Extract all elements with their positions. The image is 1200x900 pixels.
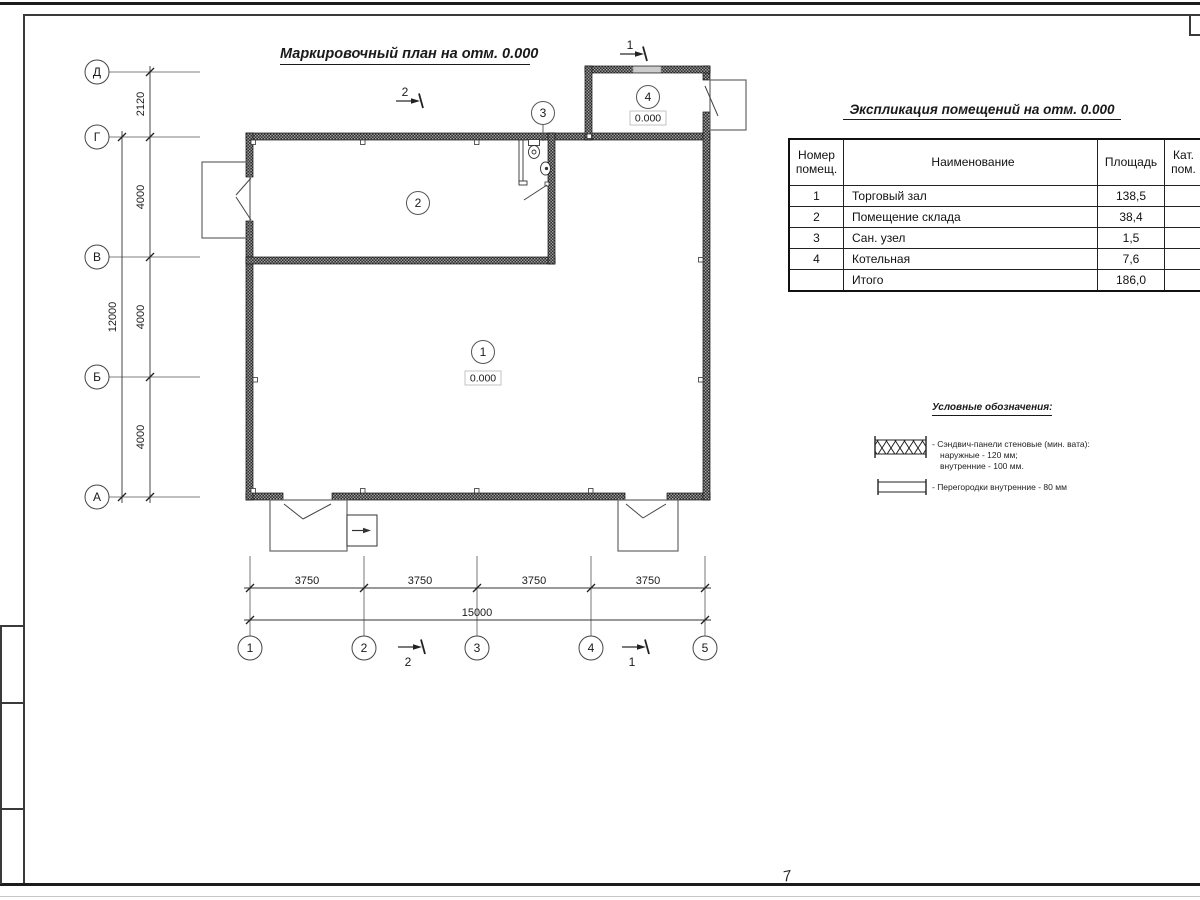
axis-label-b: Б bbox=[93, 370, 101, 384]
table-row: 4 Котельная 7,6 bbox=[789, 249, 1200, 270]
cell-number: 3 bbox=[789, 228, 844, 249]
axis-label-1: 1 bbox=[247, 641, 254, 655]
table-row: 2 Помещение склада 38,4 bbox=[789, 207, 1200, 228]
section-label-2-top: 2 bbox=[402, 85, 409, 99]
section-mark-2-top bbox=[396, 94, 423, 109]
sandwich-panel-symbol bbox=[875, 436, 926, 458]
col-header-number: Номер помещ. bbox=[789, 139, 844, 186]
cell-number: 2 bbox=[789, 207, 844, 228]
section-label-2-bottom: 2 bbox=[405, 655, 412, 669]
plan-title: Маркировочный план на отм. 0.000 bbox=[280, 46, 530, 65]
dim-bottom-3: 3750 bbox=[522, 575, 546, 587]
legend-item-sandwich: - Сэндвич-панели стеновые (мин. вата): н… bbox=[932, 439, 1122, 472]
cell-name: Итого bbox=[844, 270, 1098, 292]
legend-line: внутренние - 100 мм. bbox=[932, 461, 1122, 472]
table-title: Экспликация помещений на отм. 0.000 bbox=[843, 102, 1121, 120]
interior-walls bbox=[246, 133, 555, 264]
cell-name: Торговый зал bbox=[844, 186, 1098, 207]
section-label-1-bottom: 1 bbox=[629, 655, 636, 669]
boiler-louver bbox=[633, 67, 661, 73]
dim-bottom-total: 15000 bbox=[462, 607, 493, 619]
dim-left-1: 2120 bbox=[135, 92, 147, 116]
room-schedule-table: Номер помещ. Наименование Площадь Кат. п… bbox=[788, 138, 1200, 292]
axis-label-d: Д bbox=[93, 65, 101, 79]
room-1-number: 1 bbox=[480, 345, 487, 359]
dim-left-4: 4000 bbox=[135, 425, 147, 449]
col-header-name: Наименование bbox=[844, 139, 1098, 186]
axis-label-4: 4 bbox=[588, 641, 595, 655]
axis-label-v: В bbox=[93, 250, 101, 264]
axis-label-2: 2 bbox=[361, 641, 368, 655]
section-mark-1-bottom bbox=[622, 640, 649, 655]
dimension-lines bbox=[122, 66, 711, 620]
legend-line: - Перегородки внутренние - 80 мм bbox=[932, 482, 1122, 493]
room-4-elevation: 0.000 bbox=[635, 113, 661, 125]
exterior-walls bbox=[246, 66, 710, 500]
room-1-elevation: 0.000 bbox=[470, 373, 496, 385]
cell-number bbox=[789, 270, 844, 292]
cell-cat bbox=[1165, 270, 1200, 292]
dim-left-total: 12000 bbox=[107, 302, 119, 333]
cell-area: 7,6 bbox=[1098, 249, 1165, 270]
cell-cat bbox=[1165, 207, 1200, 228]
dim-bottom-2: 3750 bbox=[408, 575, 432, 587]
door-leaves bbox=[236, 86, 718, 519]
drawing-sheet: 3750 3750 3750 3750 15000 2120 4000 4000… bbox=[0, 0, 1200, 900]
room-3-number: 3 bbox=[540, 106, 547, 120]
axis-label-g: Г bbox=[94, 130, 101, 144]
legend-item-partition: - Перегородки внутренние - 80 мм bbox=[932, 482, 1122, 493]
entrance-arrow bbox=[347, 515, 377, 546]
legend-line: наружные - 120 мм; bbox=[932, 450, 1122, 461]
axis-label-3: 3 bbox=[474, 641, 481, 655]
axis-bubbles bbox=[85, 60, 717, 660]
dim-left-2: 4000 bbox=[135, 185, 147, 209]
legend-title: Условные обозначения: bbox=[932, 402, 1052, 416]
san-unit-partition bbox=[519, 140, 527, 185]
elevation-marks bbox=[465, 111, 666, 385]
axis-label-a: А bbox=[93, 490, 101, 504]
cell-name: Помещение склада bbox=[844, 207, 1098, 228]
cell-number: 4 bbox=[789, 249, 844, 270]
col-header-cat: Кат. пом. bbox=[1165, 139, 1200, 186]
cell-area: 186,0 bbox=[1098, 270, 1165, 292]
table-header-row: Номер помещ. Наименование Площадь Кат. п… bbox=[789, 139, 1200, 186]
column-marks bbox=[251, 134, 703, 493]
partition-symbol bbox=[878, 479, 926, 495]
cell-cat bbox=[1165, 186, 1200, 207]
dim-left-3: 4000 bbox=[135, 305, 147, 329]
room-2-number: 2 bbox=[415, 196, 422, 210]
room-bubbles bbox=[407, 86, 660, 364]
cell-area: 38,4 bbox=[1098, 207, 1165, 228]
toilet-icon bbox=[529, 140, 540, 159]
col-header-area: Площадь bbox=[1098, 139, 1165, 186]
cell-area: 1,5 bbox=[1098, 228, 1165, 249]
legend-line: - Сэндвич-панели стеновые (мин. вата): bbox=[932, 439, 1122, 450]
table-total-row: Итого 186,0 bbox=[789, 270, 1200, 292]
cell-area: 138,5 bbox=[1098, 186, 1165, 207]
section-mark-2-bottom bbox=[398, 640, 425, 655]
cell-name: Сан. узел bbox=[844, 228, 1098, 249]
room-4-number: 4 bbox=[645, 90, 652, 104]
cell-number: 1 bbox=[789, 186, 844, 207]
section-mark-1-top bbox=[620, 47, 647, 62]
cell-cat bbox=[1165, 249, 1200, 270]
porches bbox=[202, 80, 746, 551]
axis-lines bbox=[109, 72, 705, 636]
cell-cat bbox=[1165, 228, 1200, 249]
dim-bottom-1: 3750 bbox=[295, 575, 319, 587]
table-row: 3 Сан. узел 1,5 bbox=[789, 228, 1200, 249]
table-row: 1 Торговый зал 138,5 bbox=[789, 186, 1200, 207]
cell-name: Котельная bbox=[844, 249, 1098, 270]
sink-icon bbox=[541, 162, 551, 175]
dimension-ticks bbox=[118, 68, 709, 624]
section-label-1-top: 1 bbox=[627, 38, 634, 52]
axis-label-5: 5 bbox=[702, 641, 709, 655]
dim-bottom-4: 3750 bbox=[636, 575, 660, 587]
